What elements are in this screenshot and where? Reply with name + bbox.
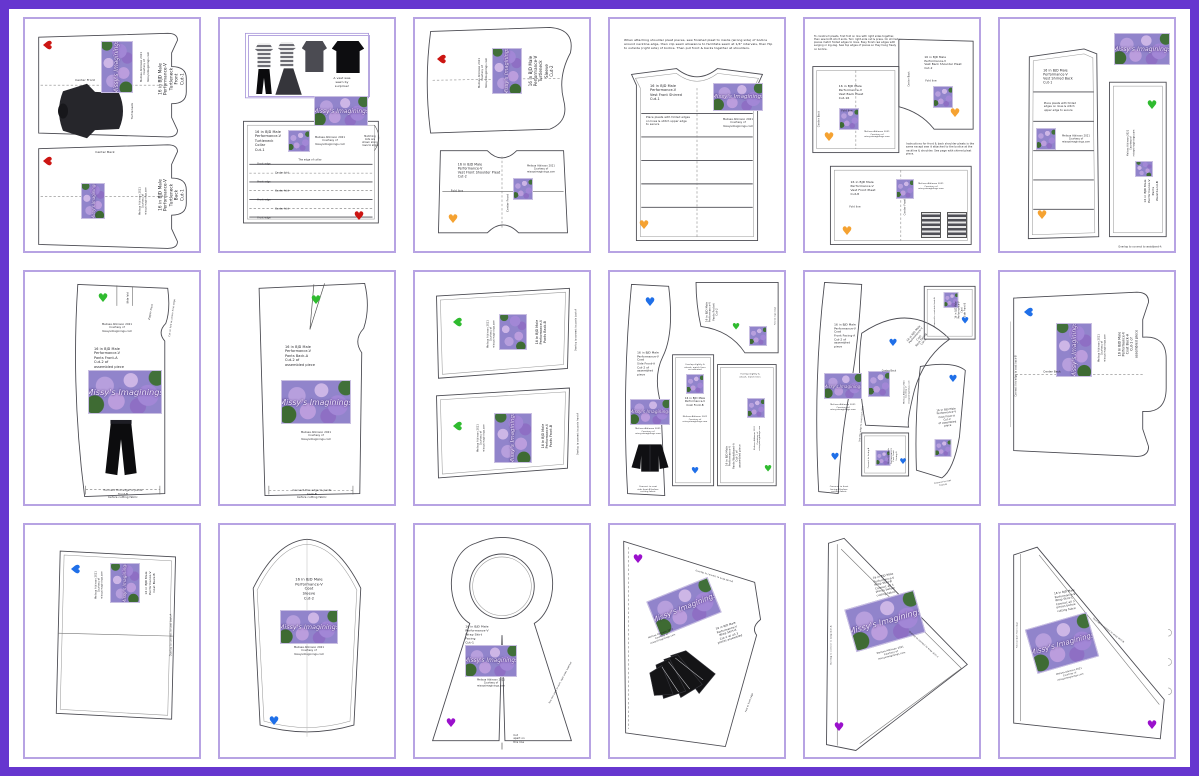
green-heart-icon: ♥ xyxy=(1147,99,1158,111)
fold-label: Fold line xyxy=(849,205,860,208)
page-wrap-skirt-b[interactable]: Missy's Imaginings16 in BJD Male Perform… xyxy=(803,523,981,759)
brand-logo xyxy=(868,371,890,397)
brand-name: Missy's Imaginings xyxy=(91,183,96,219)
fold-label: Fold line xyxy=(451,189,463,193)
brand-logo xyxy=(513,178,533,200)
handwritten-note: Matching dots are shown along rows to al… xyxy=(362,135,378,147)
brand-logo xyxy=(933,86,953,108)
page-vest-shirred-back-waistband-b[interactable]: Missy's Imaginings16 in BJD Male Perform… xyxy=(998,17,1176,253)
handwritten-note: Place pleats with folded edges on lines … xyxy=(1044,102,1076,112)
blue-heart-icon: ♥ xyxy=(889,339,898,349)
attribution: Melissa Atkinson 2021 Courtesy of missys… xyxy=(754,426,762,451)
fold-label: Front edge xyxy=(257,163,270,166)
fold-label: Center fold xyxy=(275,190,289,193)
edge-note: Overlap to connect to waistband-A xyxy=(1118,246,1161,249)
piece-header: 16 in BJD Male Performance-V Vest Back S… xyxy=(924,56,961,71)
brand-logo xyxy=(288,130,310,152)
edge-note: Overlap to connect to coat back-A xyxy=(170,614,173,657)
print-jacket-photo xyxy=(302,41,327,72)
brand-logo xyxy=(896,179,914,199)
handwritten-note: To construct pleats, first fold on line … xyxy=(814,35,900,51)
page-coat-back-b[interactable]: Missy's Imaginings16 in BJD Male Perform… xyxy=(23,523,201,759)
brand-name: Missy's Imaginings xyxy=(280,623,338,631)
piece-header: 16 in BJD Male Performance-V Pants Front… xyxy=(541,424,553,449)
attribution: Melissa Atkinson 2021 Courtesy of missys… xyxy=(95,571,104,599)
black-jacket-photo xyxy=(332,41,364,73)
print-skirt-photo xyxy=(275,68,301,94)
red-heart-icon: ♥ xyxy=(41,40,53,51)
page-turtleneck-front-back[interactable]: Missy's ImaginingsMissy's Imaginings16 i… xyxy=(23,17,201,253)
handwritten-note: Overlap slightly & attach, match lines a… xyxy=(684,364,705,372)
fold-label: Center Back xyxy=(882,371,896,374)
brand-logo: Missy's Imaginings xyxy=(494,413,532,463)
page-coat-back-a[interactable]: Missy's Imaginings16 in BJD Male Perform… xyxy=(998,270,1176,506)
attribution: Melissa Atkinson 2021 Courtesy of missys… xyxy=(294,646,324,656)
blue-heart-icon: ♥ xyxy=(69,564,81,575)
edge-note: Fold at top edge xyxy=(775,307,778,326)
black-pants-photo xyxy=(256,69,272,94)
piece-header: 16 in BJD Male Performance-V Vest Shirre… xyxy=(1043,69,1073,86)
brand-logo xyxy=(747,398,765,418)
piece-header: 16 in BJD Male Performance-V Coat Front … xyxy=(834,323,856,348)
orange-heart-icon: ♥ xyxy=(824,131,835,143)
attribution: Melissa Atkinson 2021 Courtesy of missys… xyxy=(315,136,345,146)
red-heart-icon: ♥ xyxy=(435,54,447,65)
page-pants-back-a[interactable]: Missy's Imaginings16 in BJD Male Perform… xyxy=(218,270,396,506)
fold-label: Center Back xyxy=(817,111,820,127)
brand-name: Missy's Imaginings xyxy=(824,384,862,389)
fold-label: Center Front xyxy=(903,199,906,216)
piece-header: 16 in BJD Male Performance-V Pants Back-… xyxy=(535,320,547,345)
striped-shirt-photo xyxy=(278,42,296,67)
purple-heart-icon: ♥ xyxy=(446,717,457,729)
blue-heart-icon: ♥ xyxy=(961,318,969,327)
piece-header: 16 in BJD Male Performance-V Vest Front … xyxy=(458,163,501,180)
brand-logo: Missy's Imaginings xyxy=(281,380,351,424)
piece-header: 16 in BJD Male Performance-V Coat Front-… xyxy=(936,407,958,428)
edge-note: Connect to coat side front-A xyxy=(934,297,936,326)
green-heart-icon: ♥ xyxy=(764,466,772,475)
attribution: Melissa Atkinson 2021 Courtesy of missys… xyxy=(864,131,890,139)
brand-name: Missy's Imaginings xyxy=(88,387,162,397)
green-heart-icon: ♥ xyxy=(451,421,463,432)
purple-heart-icon: ♥ xyxy=(1147,719,1158,731)
brand-logo xyxy=(935,439,952,457)
pleat-swatch-photo xyxy=(921,212,941,238)
page-turtleneck-sleeve-shoulder-pleat[interactable]: Missy's Imaginings16 in BJD Male Perform… xyxy=(413,17,591,253)
brand-name: Missy's Imaginings xyxy=(847,606,922,635)
edge-note: Overlap to connect to pants back-A xyxy=(576,309,579,351)
brand-name: Missy's Imaginings xyxy=(281,398,351,407)
pattern-outlines xyxy=(610,19,784,251)
fold-label: Center fold xyxy=(275,172,289,175)
blue-heart-icon: ♥ xyxy=(269,715,280,727)
brand-logo: Missy's Imaginings xyxy=(1056,323,1092,377)
page-wrap-skirt-a[interactable]: Missy's Imaginings16 in BJD Male Perform… xyxy=(608,523,786,759)
fold-label: Fold line xyxy=(841,109,852,112)
handwritten-note: Connect this edge to pants front-B befor… xyxy=(104,489,143,500)
attribution: Melissa Atkinson 2021 Courtesy of missys… xyxy=(918,183,944,191)
blue-heart-icon: ♥ xyxy=(1022,307,1034,318)
attribution: Melissa Atkinson 2021 Courtesy of missys… xyxy=(487,320,496,348)
attribution: Melissa Atkinson 2021 Courtesy of missys… xyxy=(102,323,132,333)
fold-label: Front edge xyxy=(257,217,270,220)
striped-shirt-photo xyxy=(255,43,273,68)
purple-heart-icon: ♥ xyxy=(834,721,845,733)
attribution: Melissa Atkinson 2021 Courtesy of missys… xyxy=(1098,334,1107,362)
brand-logo: Missy's Imaginings xyxy=(314,96,368,126)
blue-heart-icon: ♥ xyxy=(691,468,699,477)
piece-header: 16 in BJD Male Performance-V Vest Front … xyxy=(850,181,875,197)
fold-label: Fold line xyxy=(925,79,936,82)
attribution: Melissa Atkinson 2021 Courtesy of missys… xyxy=(1128,130,1137,157)
coat-photo xyxy=(628,441,672,475)
orange-heart-icon: ♥ xyxy=(842,225,853,237)
handwritten-note: When attaching shoulder pleat pieces, se… xyxy=(624,39,774,51)
page-coat-facings-front-a[interactable]: Missy's Imaginings16 in BJD Male Perform… xyxy=(803,270,981,506)
edge-note: Overlap to connect to wrap skirt-A xyxy=(831,625,834,664)
photo-caption: Turtleneck xyxy=(131,103,135,120)
brand-logo: Missy's Imaginings xyxy=(81,183,105,219)
handwritten-note: Connect to coat side front-B before cutt… xyxy=(637,486,658,494)
fold-label: Front edge xyxy=(257,199,270,202)
page-vest-front-shirred[interactable]: Missy's ImaginingsWhen attaching shoulde… xyxy=(608,17,786,253)
attribution: Melissa Atkinson 2021 Courtesy of missys… xyxy=(527,165,555,174)
blue-heart-icon: ♥ xyxy=(949,375,958,385)
fold-label: Center Back xyxy=(95,151,114,155)
blue-heart-icon: ♥ xyxy=(899,458,906,466)
brand-logo: Missy's Imaginings xyxy=(280,610,338,644)
pattern-outlines xyxy=(25,525,199,757)
fold-label: Center Back xyxy=(1043,370,1061,374)
handwritten-note: Connect to front facing-B before cutting… xyxy=(830,486,849,494)
handwritten-note: Overlap slightly & attach, match lines xyxy=(739,373,760,378)
brand-logo: Missy's Imaginings xyxy=(465,645,517,677)
handwritten-note: Cut apart on this line xyxy=(513,734,524,744)
purple-heart-icon: ♥ xyxy=(633,553,644,565)
orange-heart-icon: ♥ xyxy=(1037,209,1048,221)
page-grid: Missy's ImaginingsMissy's Imaginings16 i… xyxy=(9,9,1190,767)
brand-name: Missy's Imaginings xyxy=(314,108,368,115)
outfit-collage-photo xyxy=(248,35,370,97)
orange-heart-icon: ♥ xyxy=(639,219,650,231)
piece-header: 16 in BJD Male Performance-V Turtleneck … xyxy=(157,179,184,211)
fold-label: Center fold xyxy=(275,208,289,211)
orange-heart-icon: ♥ xyxy=(950,107,961,119)
piece-header: 16 in BJD Male Performance-V Coat Back-A… xyxy=(1118,330,1139,358)
edge-note: Wide fold xyxy=(128,292,131,303)
page-pants-back-b-front-b[interactable]: Missy's Imaginings16 in BJD Male Perform… xyxy=(413,270,591,506)
piece-header: 16 in BJD Male Performance-V Pants Back-… xyxy=(285,345,315,367)
attribution: Melissa Atkinson 2021 Courtesy of missys… xyxy=(139,187,148,215)
brand-name: Missy's Imaginings xyxy=(713,94,763,100)
brand-name: Missy's Imaginings xyxy=(1029,629,1096,656)
edge-note: Connect this edge to coat back-B xyxy=(1015,355,1018,396)
piece-header: 16 in BJD Male Performance-V Wrap Skirt-… xyxy=(1054,589,1078,613)
edge-note: Overlap to connect to pants front-A xyxy=(578,413,581,455)
brand-name: Missy's Imaginings xyxy=(504,48,510,94)
piece-header: 16 in BJD Male Performance-V Wrap Skirt-… xyxy=(873,573,898,598)
piece-header: 16 in BJD Male Performance-V Pants Waist… xyxy=(726,443,743,469)
attribution: Melissa Atkinson 2021 Courtesy of missys… xyxy=(478,58,488,88)
green-heart-icon: ♥ xyxy=(732,324,740,333)
brand-logo xyxy=(499,314,527,350)
attribution: Melissa Atkinson 2021 Courtesy of missys… xyxy=(683,416,708,424)
page-wrap-skirt-c[interactable]: Missy's Imaginings16 in BJD Male Perform… xyxy=(998,523,1176,759)
pleat-swatch-photo xyxy=(947,212,967,238)
brand-logo: Missy's Imaginings xyxy=(492,48,522,94)
brand-logo: Missy's Imaginings xyxy=(101,41,133,93)
fold-label: Center Back xyxy=(908,71,911,86)
brand-name: Missy's Imaginings xyxy=(630,410,670,415)
piece-header: 16 in BJD Male Performance-V Pants Front… xyxy=(94,347,124,369)
page-coat-sleeve[interactable]: Missy's Imaginings16 in BJD Male Perform… xyxy=(218,523,396,759)
page-wrap-skirt-facing[interactable]: Missy's Imaginings16 in BJD Male Perform… xyxy=(413,523,591,759)
brand-logo: Missy's Imaginings xyxy=(824,373,862,399)
piece-header: 16 in BJD Male Performance-V Vest Front … xyxy=(650,84,682,102)
skirt-photo xyxy=(643,645,721,705)
brand-logo xyxy=(686,374,704,394)
piece-header: 16 in BJD Male Performance-V Coat Front … xyxy=(888,448,898,464)
brand-name: Missy's Imaginings xyxy=(123,563,128,603)
green-heart-icon: ♥ xyxy=(451,317,463,328)
blue-heart-icon: ♥ xyxy=(645,296,656,308)
brand-name: Missy's Imaginings xyxy=(465,658,517,664)
piece-header: 16 in BJD Male Performance-V Turtleneck … xyxy=(157,63,184,95)
attribution: Melissa Atkinson 2021 Courtesy of missys… xyxy=(635,428,661,436)
handwritten-note: Place pleats with folded edges on lines … xyxy=(646,116,690,127)
piece-header: 16 in BJD Male Performance-V Pants Pocke… xyxy=(705,302,718,322)
piece-header: 16 in BJD Male Performance-V Coat Sleeve… xyxy=(295,577,323,600)
green-heart-icon: ♥ xyxy=(311,294,322,306)
piece-header: 16 in BJD Male Performance-V Vest Back P… xyxy=(839,85,864,101)
attribution: Melissa Atkinson 2021 Courtesy of missys… xyxy=(301,431,331,441)
pattern-outlines xyxy=(415,525,589,757)
pattern-outlines xyxy=(415,272,589,504)
brand-name: Missy's Imaginings xyxy=(510,413,516,463)
edge-label: The edge of collar xyxy=(298,158,321,161)
edge-note: Fold at skirt front edge xyxy=(1017,622,1020,648)
pattern-contact-sheet: Missy's ImaginingsMissy's Imaginings16 i… xyxy=(0,0,1199,776)
brand-logo: Missy's Imaginings xyxy=(1114,33,1170,65)
handwritten-note: Connect this edge to pants back-B before… xyxy=(293,489,332,500)
brand-name: Missy's Imaginings xyxy=(1114,46,1170,53)
brand-logo xyxy=(1036,128,1056,150)
page-pants-front-a[interactable]: Missy's ImaginingsMelissa Atkinson 2021 … xyxy=(23,270,201,506)
attribution: Melissa Atkinson 2021 Courtesy of missys… xyxy=(903,380,910,403)
piece-header: 16 in BJD Male Performance-V Coat Front-… xyxy=(685,397,705,407)
page-vest-pleats[interactable]: To construct pleats, first fold on line … xyxy=(803,17,981,253)
piece-header: 16 in BJD Male Performance-V Turtleneck … xyxy=(528,56,554,87)
piece-header: 16 in BJD Male Performance-V Pants Waist… xyxy=(1144,179,1160,202)
green-heart-icon: ♥ xyxy=(98,292,109,304)
brand-logo: Missy's Imaginings xyxy=(713,83,763,111)
red-heart-icon: ♥ xyxy=(354,210,365,222)
orange-heart-icon: ♥ xyxy=(448,213,459,225)
brand-logo: Missy's Imaginings xyxy=(630,399,670,425)
handwritten-note: Instructions for front & back shoulder p… xyxy=(906,143,976,156)
brand-name: Missy's Imaginings xyxy=(114,41,120,93)
pants-photo xyxy=(98,419,144,477)
red-heart-icon: ♥ xyxy=(41,156,53,167)
fold-label: Front edge xyxy=(257,181,270,184)
piece-header: 16 in BJD Male Performance-V Coat Back-B xyxy=(145,571,157,594)
blue-heart-icon: ♥ xyxy=(831,453,840,463)
brand-logo: Missy's Imaginings xyxy=(110,563,140,603)
attribution: Melissa Atkinson 2021 Courtesy of missys… xyxy=(140,52,150,82)
page-coat-side-front-pocket-waistband-a[interactable]: Missy's Imaginings16 in BJD Male Perform… xyxy=(608,270,786,506)
piece-header: 16 in BJD Male Performance-V Turtleneck … xyxy=(255,130,281,152)
edge-note: Connect to facing-A xyxy=(868,448,870,469)
attribution: Melissa Atkinson 2021 Courtesy of missys… xyxy=(830,404,856,412)
fold-label: Center Front xyxy=(506,194,510,212)
attribution: Melissa Atkinson 2021 Courtesy of missys… xyxy=(477,424,486,452)
brand-name: Missy's Imaginings xyxy=(1071,323,1078,377)
handwritten-note: A vest was sewn by surprise! xyxy=(333,77,350,89)
page-turtleneck-collar[interactable]: Missy's ImaginingsA vest was sewn by sur… xyxy=(218,17,396,253)
fold-label: Center Front xyxy=(75,79,95,83)
attribution: Melissa Atkinson 2021 Courtesy of missys… xyxy=(477,679,505,688)
piece-header: 16 in BJD Male Performance-V Coat Side F… xyxy=(637,351,659,376)
attribution: Melissa Atkinson 2021 Courtesy of missys… xyxy=(723,118,753,128)
brand-logo xyxy=(1135,161,1153,177)
piece-header: 16 in BJD Male Performance-V Wrap Skirt … xyxy=(465,625,488,644)
brand-logo: Missy's Imaginings xyxy=(88,370,162,414)
brand-logo xyxy=(749,326,767,346)
attribution: Melissa Atkinson 2021 Courtesy of missys… xyxy=(1062,135,1090,144)
